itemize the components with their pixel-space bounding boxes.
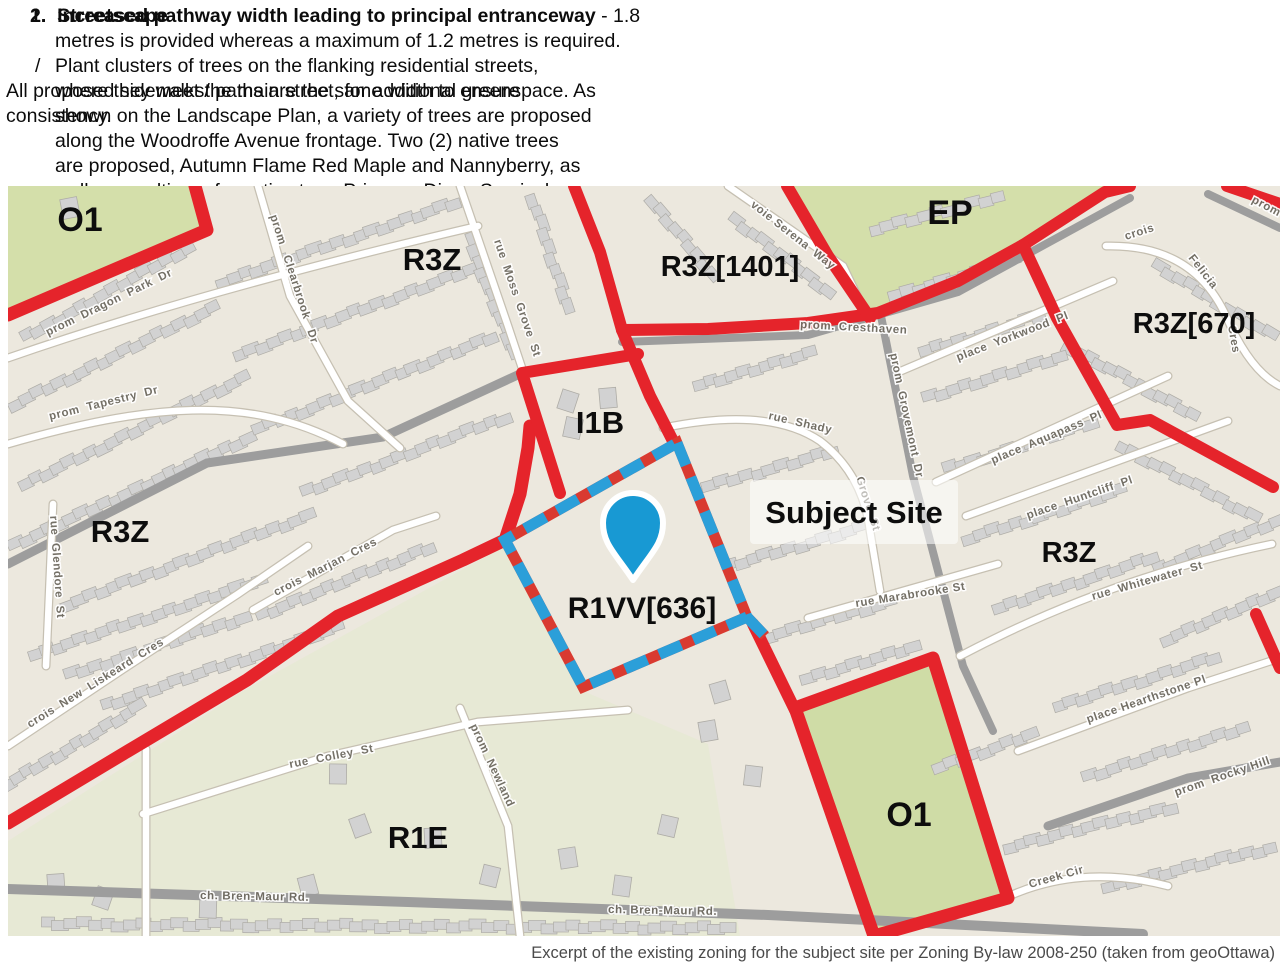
- zone-label: O1: [57, 201, 102, 239]
- zone-label: I1B: [576, 405, 624, 440]
- building: [268, 919, 282, 929]
- overlay-line: All proposed sidewalks/ paths are the sa…: [6, 79, 520, 104]
- building: [685, 923, 699, 933]
- zone-label: R1VV[636]: [568, 592, 716, 625]
- bullet-paragraph: Plant clusters of trees on the flanking …: [55, 54, 596, 204]
- zoning-map-figure: prom Dragon Park Drprom Clearbrook Drpro…: [8, 186, 1280, 936]
- zone-label: O1: [886, 796, 931, 834]
- building: [720, 922, 736, 932]
- building: [208, 917, 222, 927]
- item2-title: Streetscape: [57, 5, 168, 27]
- item1-line2: metres is provided whereas a maximum of …: [30, 29, 640, 54]
- zone-label: R3Z: [403, 242, 462, 277]
- overlay-paragraph: All proposed sidewalks/ paths are the sa…: [6, 79, 520, 129]
- building: [89, 920, 103, 930]
- item1-tail: - 1.8: [596, 5, 640, 27]
- zone-label: R1E: [388, 820, 448, 855]
- zone-label: R3Z[670]: [1133, 308, 1256, 340]
- building: [743, 765, 762, 787]
- bullet-line: Plant clusters of trees on the flanking …: [55, 54, 596, 79]
- building: [387, 921, 401, 931]
- item2-number: 2.: [30, 5, 46, 27]
- building: [626, 921, 640, 931]
- zone-label: EP: [927, 194, 972, 232]
- document-page: { "text_block": { "item": { "num2": "2."…: [0, 0, 1280, 971]
- building: [329, 764, 346, 784]
- building: [612, 875, 632, 897]
- building: [698, 720, 718, 743]
- subject-site-label: Subject Site: [765, 495, 942, 530]
- list-item-2-overlap: 2. Streetscape: [30, 4, 168, 29]
- street-label: ch. Bren-Maur Rd.: [608, 904, 717, 918]
- zone-label: R3Z[1401]: [661, 251, 800, 283]
- zoning-text-area: 1. Increased pathway width leading to pr…: [0, 0, 680, 186]
- building: [447, 923, 461, 933]
- figure-caption: Excerpt of the existing zoning for the s…: [0, 944, 1275, 963]
- building: [566, 920, 580, 930]
- street-label: ch. Bren-Maur Rd.: [200, 890, 309, 904]
- zone-label: R3Z: [1042, 537, 1097, 569]
- zone-label: R3Z: [91, 514, 150, 549]
- zoning-map: prom Dragon Park Drprom Clearbrook Drpro…: [8, 186, 1280, 936]
- building: [327, 920, 341, 930]
- bullet-marker: /: [35, 54, 40, 79]
- bullet-line: are proposed, Autumn Flame Red Maple and…: [55, 154, 596, 179]
- building: [558, 847, 578, 869]
- bullet-line: along the Woodroffe Avenue frontage. Two…: [55, 129, 596, 154]
- overlay-line: consistency.: [6, 104, 520, 129]
